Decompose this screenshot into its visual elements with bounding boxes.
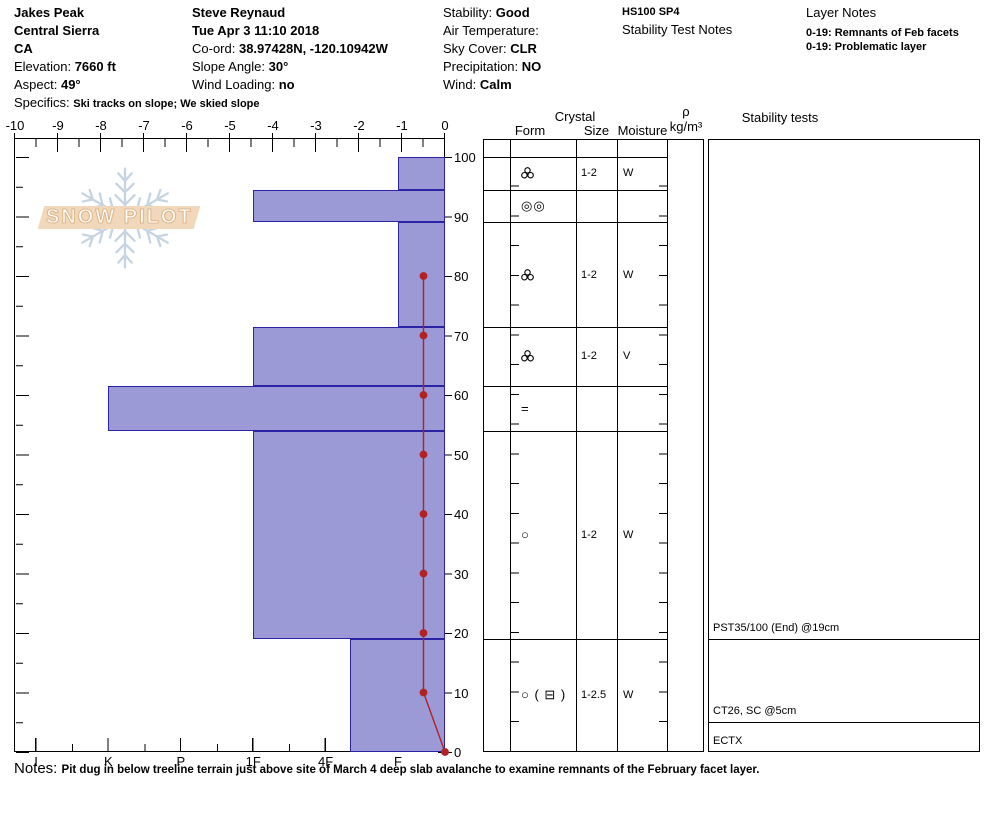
depth-axis-label: 0 [454, 745, 461, 760]
temperature-point [420, 391, 428, 399]
layer-note: 0-19: Problematic layer [806, 40, 959, 54]
stability-value: Good [496, 5, 530, 20]
observer-name: Steve Reynaud [192, 4, 388, 22]
coord-label: Co-ord: [192, 41, 239, 56]
temperature-point [420, 451, 428, 459]
snowpilot-profile-report: Jakes Peak Central Sierra CA Elevation: … [0, 0, 994, 840]
stability-test-line [709, 639, 979, 640]
crystal-form-cell [521, 347, 534, 365]
moisture-cell: W [623, 269, 633, 281]
slope-angle-value: 30° [269, 59, 289, 74]
wind-loading-label: Wind Loading: [192, 77, 279, 92]
depth-axis-label: 10 [454, 686, 468, 701]
depth-axis-label: 60 [454, 388, 468, 403]
layer-boundary-line [484, 386, 667, 387]
wind-label: Wind: [443, 77, 480, 92]
temperature-point [420, 689, 428, 697]
stability-test-line [709, 722, 979, 723]
size-header: Size [576, 123, 617, 138]
aspect-value: 49° [61, 77, 81, 92]
wind-value: Calm [480, 77, 512, 92]
slope-angle: Slope Angle: 30° [192, 58, 388, 76]
moisture-cell: V [623, 350, 630, 362]
notes-label: Notes: [14, 760, 62, 777]
temp-axis-label: -5 [213, 118, 247, 133]
depth-axis-label: 40 [454, 507, 468, 522]
temperature-point [420, 629, 428, 637]
temperature-point [420, 570, 428, 578]
form-header: Form [510, 123, 550, 138]
air-temperature: Air Temperature: [443, 22, 541, 40]
mf-cluster-icon [521, 269, 534, 281]
sky-value: CLR [510, 41, 537, 56]
moisture-cell: W [623, 167, 633, 179]
moisture-cell: W [623, 529, 633, 541]
stability-test-notes-title: Stability Test Notes [622, 21, 732, 39]
slope-angle-label: Slope Angle: [192, 59, 269, 74]
layer-boundary-line [484, 190, 667, 191]
depth-axis-label: 80 [454, 269, 468, 284]
coordinates: Co-ord: 38.97428N, -120.10942W [192, 40, 388, 58]
temp-axis-label: -2 [342, 118, 376, 133]
site-specifics: Specifics: Ski tracks on slope; We skied… [14, 94, 260, 113]
table-divider [576, 139, 577, 752]
precipitation: Precipitation: NO [443, 58, 541, 76]
layer-boundary-line [484, 222, 667, 223]
temp-axis-label: -8 [84, 118, 118, 133]
stability-test-entry: PST35/100 (End) @19cm [713, 622, 839, 634]
wind-loading-value: no [279, 77, 295, 92]
sky-cover: Sky Cover: CLR [443, 40, 541, 58]
elevation-label: Elevation: [14, 59, 75, 74]
density-column-box [667, 139, 704, 752]
temperature-point [420, 272, 428, 280]
grain-size-cell: 1-2 [581, 167, 597, 179]
temp-axis-label: -1 [385, 118, 419, 133]
stability-tests-box [708, 139, 980, 752]
density-symbol-header: ρ [666, 104, 706, 119]
crystal-form-cell: ○ ( ⊟ ) [521, 686, 566, 704]
crystal-header: Crystal [535, 109, 615, 124]
layer-boundary-line [484, 639, 667, 640]
mf-cluster-icon [521, 167, 534, 179]
layer-note: 0-19: Remnants of Feb facets [806, 26, 959, 40]
wind-loading: Wind Loading: no [192, 76, 388, 94]
layer-notes-column: Layer Notes 0-19: Remnants of Feb facets… [806, 4, 959, 54]
stability-label: Stability: [443, 5, 496, 20]
crystal-form-cell: ◎◎ [521, 197, 546, 215]
temp-axis-label: -3 [299, 118, 333, 133]
temperature-point [420, 332, 428, 340]
crystal-form-cell [521, 164, 534, 182]
snowpack-code: HS100 SP4 [622, 4, 732, 21]
temperature-profile-line [15, 139, 446, 753]
grain-size-cell: 1-2 [581, 269, 597, 281]
grain-size-cell: 1-2 [581, 350, 597, 362]
grain-size-cell: 1-2 [581, 529, 597, 541]
pit-notes: Notes: Pit dug in below treeline terrain… [14, 760, 759, 778]
temp-axis-label: -10 [0, 118, 32, 133]
aspect-label: Aspect: [14, 77, 61, 92]
density-units-header: kg/m³ [666, 119, 706, 134]
crystal-form-cell: ○ [521, 526, 530, 544]
observation-datetime: Tue Apr 3 11:10 2018 [192, 22, 388, 40]
temp-axis-label: -4 [256, 118, 290, 133]
temp-axis-label: -7 [127, 118, 161, 133]
coord-value: 38.97428N, -120.10942W [239, 41, 388, 56]
temperature-point [441, 748, 449, 756]
table-divider [510, 139, 511, 752]
table-divider [617, 139, 618, 752]
precip-value: NO [522, 59, 542, 74]
wind: Wind: Calm [443, 76, 541, 94]
stability-test-entry: CT26, SC @5cm [713, 705, 796, 717]
depth-axis-label: 100 [454, 150, 476, 165]
grain-size-cell: 1-2.5 [581, 689, 606, 701]
specifics-value: Ski tracks on slope; We skied slope [73, 98, 259, 110]
depth-axis-label: 50 [454, 448, 468, 463]
mf-cluster-icon [521, 350, 534, 362]
precip-label: Precipitation: [443, 59, 522, 74]
depth-axis-label: 20 [454, 626, 468, 641]
moisture-cell: W [623, 689, 633, 701]
observer-info-column: Steve Reynaud Tue Apr 3 11:10 2018 Co-or… [192, 4, 388, 94]
elevation-value: 7660 ft [75, 59, 116, 74]
moisture-header: Moisture [615, 123, 670, 138]
crystal-form-cell: = [521, 399, 530, 417]
specifics-label: Specifics: [14, 95, 73, 110]
snow-surface-line [484, 157, 667, 158]
sky-label: Sky Cover: [443, 41, 510, 56]
temp-axis-label: -9 [41, 118, 75, 133]
stability-tests-header: Stability tests [730, 110, 830, 125]
depth-axis-label: 90 [454, 210, 468, 225]
summary-column: HS100 SP4 Stability Test Notes [622, 4, 732, 39]
layer-boundary-line [484, 327, 667, 328]
stability-test-entry: ECTX [713, 735, 742, 747]
temp-axis-label: 0 [428, 118, 462, 133]
stability-rating: Stability: Good [443, 4, 541, 22]
layer-notes-title: Layer Notes [806, 4, 959, 22]
temperature-point [420, 510, 428, 518]
layer-boundary-line [484, 431, 667, 432]
depth-axis-label: 70 [454, 329, 468, 344]
temp-axis-label: -6 [170, 118, 204, 133]
crystal-form-cell [521, 266, 534, 284]
depth-axis-label: 30 [454, 567, 468, 582]
conditions-column: Stability: Good Air Temperature: Sky Cov… [443, 4, 541, 94]
notes-text: Pit dug in below treeline terrain just a… [62, 764, 760, 776]
